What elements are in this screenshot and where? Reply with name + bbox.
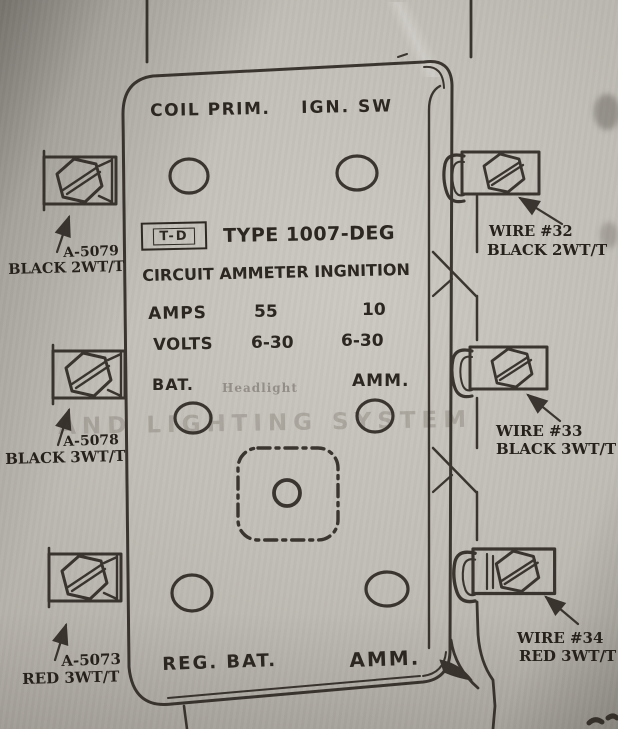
terminal-bat: [175, 403, 211, 433]
connector-post-lines: [487, 554, 493, 589]
terminal-amm-mid: [357, 400, 393, 432]
clipped-print-fragment: [589, 716, 617, 723]
callout-spec-a5079: BLACK 2WT/T: [8, 258, 125, 278]
label-coil-prim: COIL PRIM.: [150, 99, 271, 121]
callout-spec-a5073: RED 3WT/T: [22, 667, 120, 688]
label-volts: VOLTS: [153, 334, 213, 354]
scanned-wiring-diagram-page: Headlight AND LIGHTING SYSTEM: [0, 0, 618, 729]
value-amps-1: 55: [254, 302, 278, 322]
mounting-pad: [238, 448, 338, 540]
label-amm-mid: AMM.: [352, 371, 409, 391]
mounting-hole: [274, 480, 300, 506]
terminal-reg-bat: [172, 575, 212, 611]
callout-part-wire33: WIRE #33: [496, 422, 582, 440]
label-reg-bat: REG. BAT.: [162, 650, 277, 675]
terminal-coil-prim: [170, 159, 208, 193]
label-ign-sw: IGN. SW: [301, 96, 393, 118]
td-logo-text: T-D: [153, 227, 195, 245]
connector-right-middle: [452, 347, 547, 397]
connector-right-top: [444, 152, 539, 202]
label-type: TYPE 1007-DEG: [223, 222, 395, 247]
terminal-ign-sw: [337, 156, 377, 190]
label-amps: AMPS: [148, 303, 207, 324]
value-volts-1: 6-30: [251, 333, 294, 353]
connector-right-bottom: [454, 549, 555, 602]
connector-left-bottom: [49, 548, 121, 607]
connector-left-middle: [53, 345, 125, 404]
value-amps-2: 10: [362, 300, 386, 320]
label-bat: BAT.: [152, 375, 194, 394]
callout-spec-wire33: BLACK 3WT/T: [496, 440, 616, 458]
callout-part-wire34: WIRE #34: [517, 629, 603, 647]
arrow-wire34: [546, 597, 578, 624]
callout-spec-a5078: BLACK 3WT/T: [5, 447, 126, 468]
connector-left-top: [44, 151, 116, 210]
arrow-wire33: [528, 395, 560, 421]
callout-spec-wire34: RED 3WT/T: [519, 647, 616, 665]
td-logo-badge: T-D: [141, 221, 208, 250]
upper-housing-outline: [147, 0, 471, 62]
terminal-amm-bottom: [366, 572, 408, 606]
callout-spec-wire32: BLACK 2WT/T: [487, 241, 607, 259]
label-amm-bottom: AMM.: [349, 646, 421, 672]
arrow-wire32: [520, 198, 562, 224]
value-volts-2: 6-30: [341, 331, 384, 351]
callout-part-wire32: WIRE #32: [489, 223, 573, 240]
